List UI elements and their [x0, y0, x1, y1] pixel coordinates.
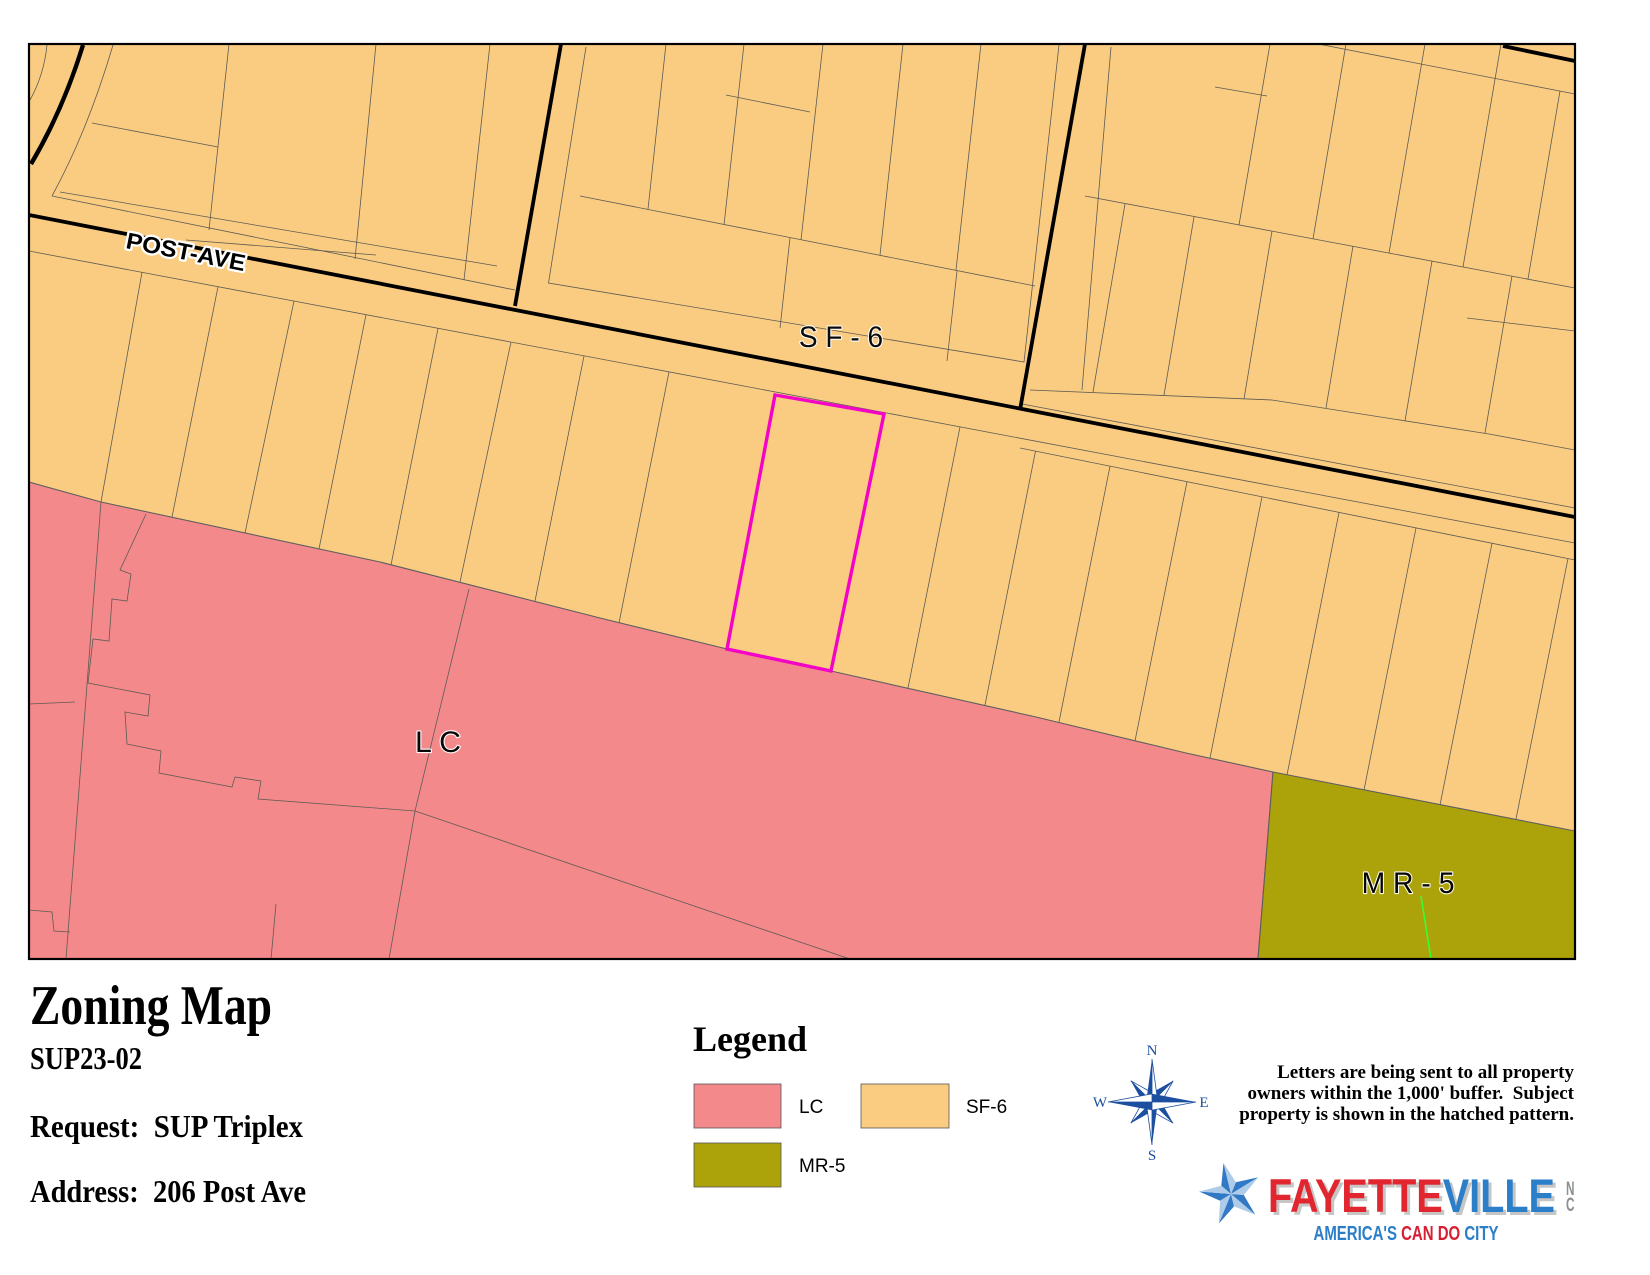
svg-text:C: C — [1566, 1195, 1575, 1215]
svg-text:property is shown in the hatch: property is shown in the hatched pattern… — [1239, 1104, 1574, 1125]
svg-text:Request: SUP Triplex: Request: SUP Triplex — [30, 1108, 303, 1144]
svg-text:Zoning Map: Zoning Map — [30, 975, 272, 1037]
svg-text:Legend: Legend — [693, 1019, 807, 1059]
svg-text:N: N — [1147, 1043, 1158, 1059]
svg-text:S: S — [1148, 1148, 1156, 1164]
svg-text:SUP23-02: SUP23-02 — [30, 1040, 142, 1076]
svg-text:S F - 6: S F - 6 — [799, 319, 883, 353]
svg-text:SF-6: SF-6 — [966, 1097, 1007, 1118]
svg-text:FAYETTEVILLE: FAYETTEVILLE — [1268, 1169, 1555, 1222]
svg-text:MR-5: MR-5 — [799, 1156, 845, 1177]
svg-text:LC: LC — [799, 1097, 823, 1118]
svg-text:AMERICA'S CAN DO CITY: AMERICA'S CAN DO CITY — [1314, 1223, 1499, 1245]
svg-text:L C: L C — [415, 724, 461, 758]
svg-text:Address: 206 Post Ave: Address: 206 Post Ave — [30, 1173, 306, 1209]
svg-text:owners within the 1,000' buffe: owners within the 1,000' buffer. Subject — [1247, 1083, 1574, 1104]
svg-text:E: E — [1199, 1095, 1208, 1111]
svg-text:Letters are being sent to all: Letters are being sent to all property — [1277, 1062, 1574, 1083]
svg-text:M R - 5: M R - 5 — [1362, 865, 1455, 899]
svg-text:W: W — [1093, 1095, 1108, 1111]
